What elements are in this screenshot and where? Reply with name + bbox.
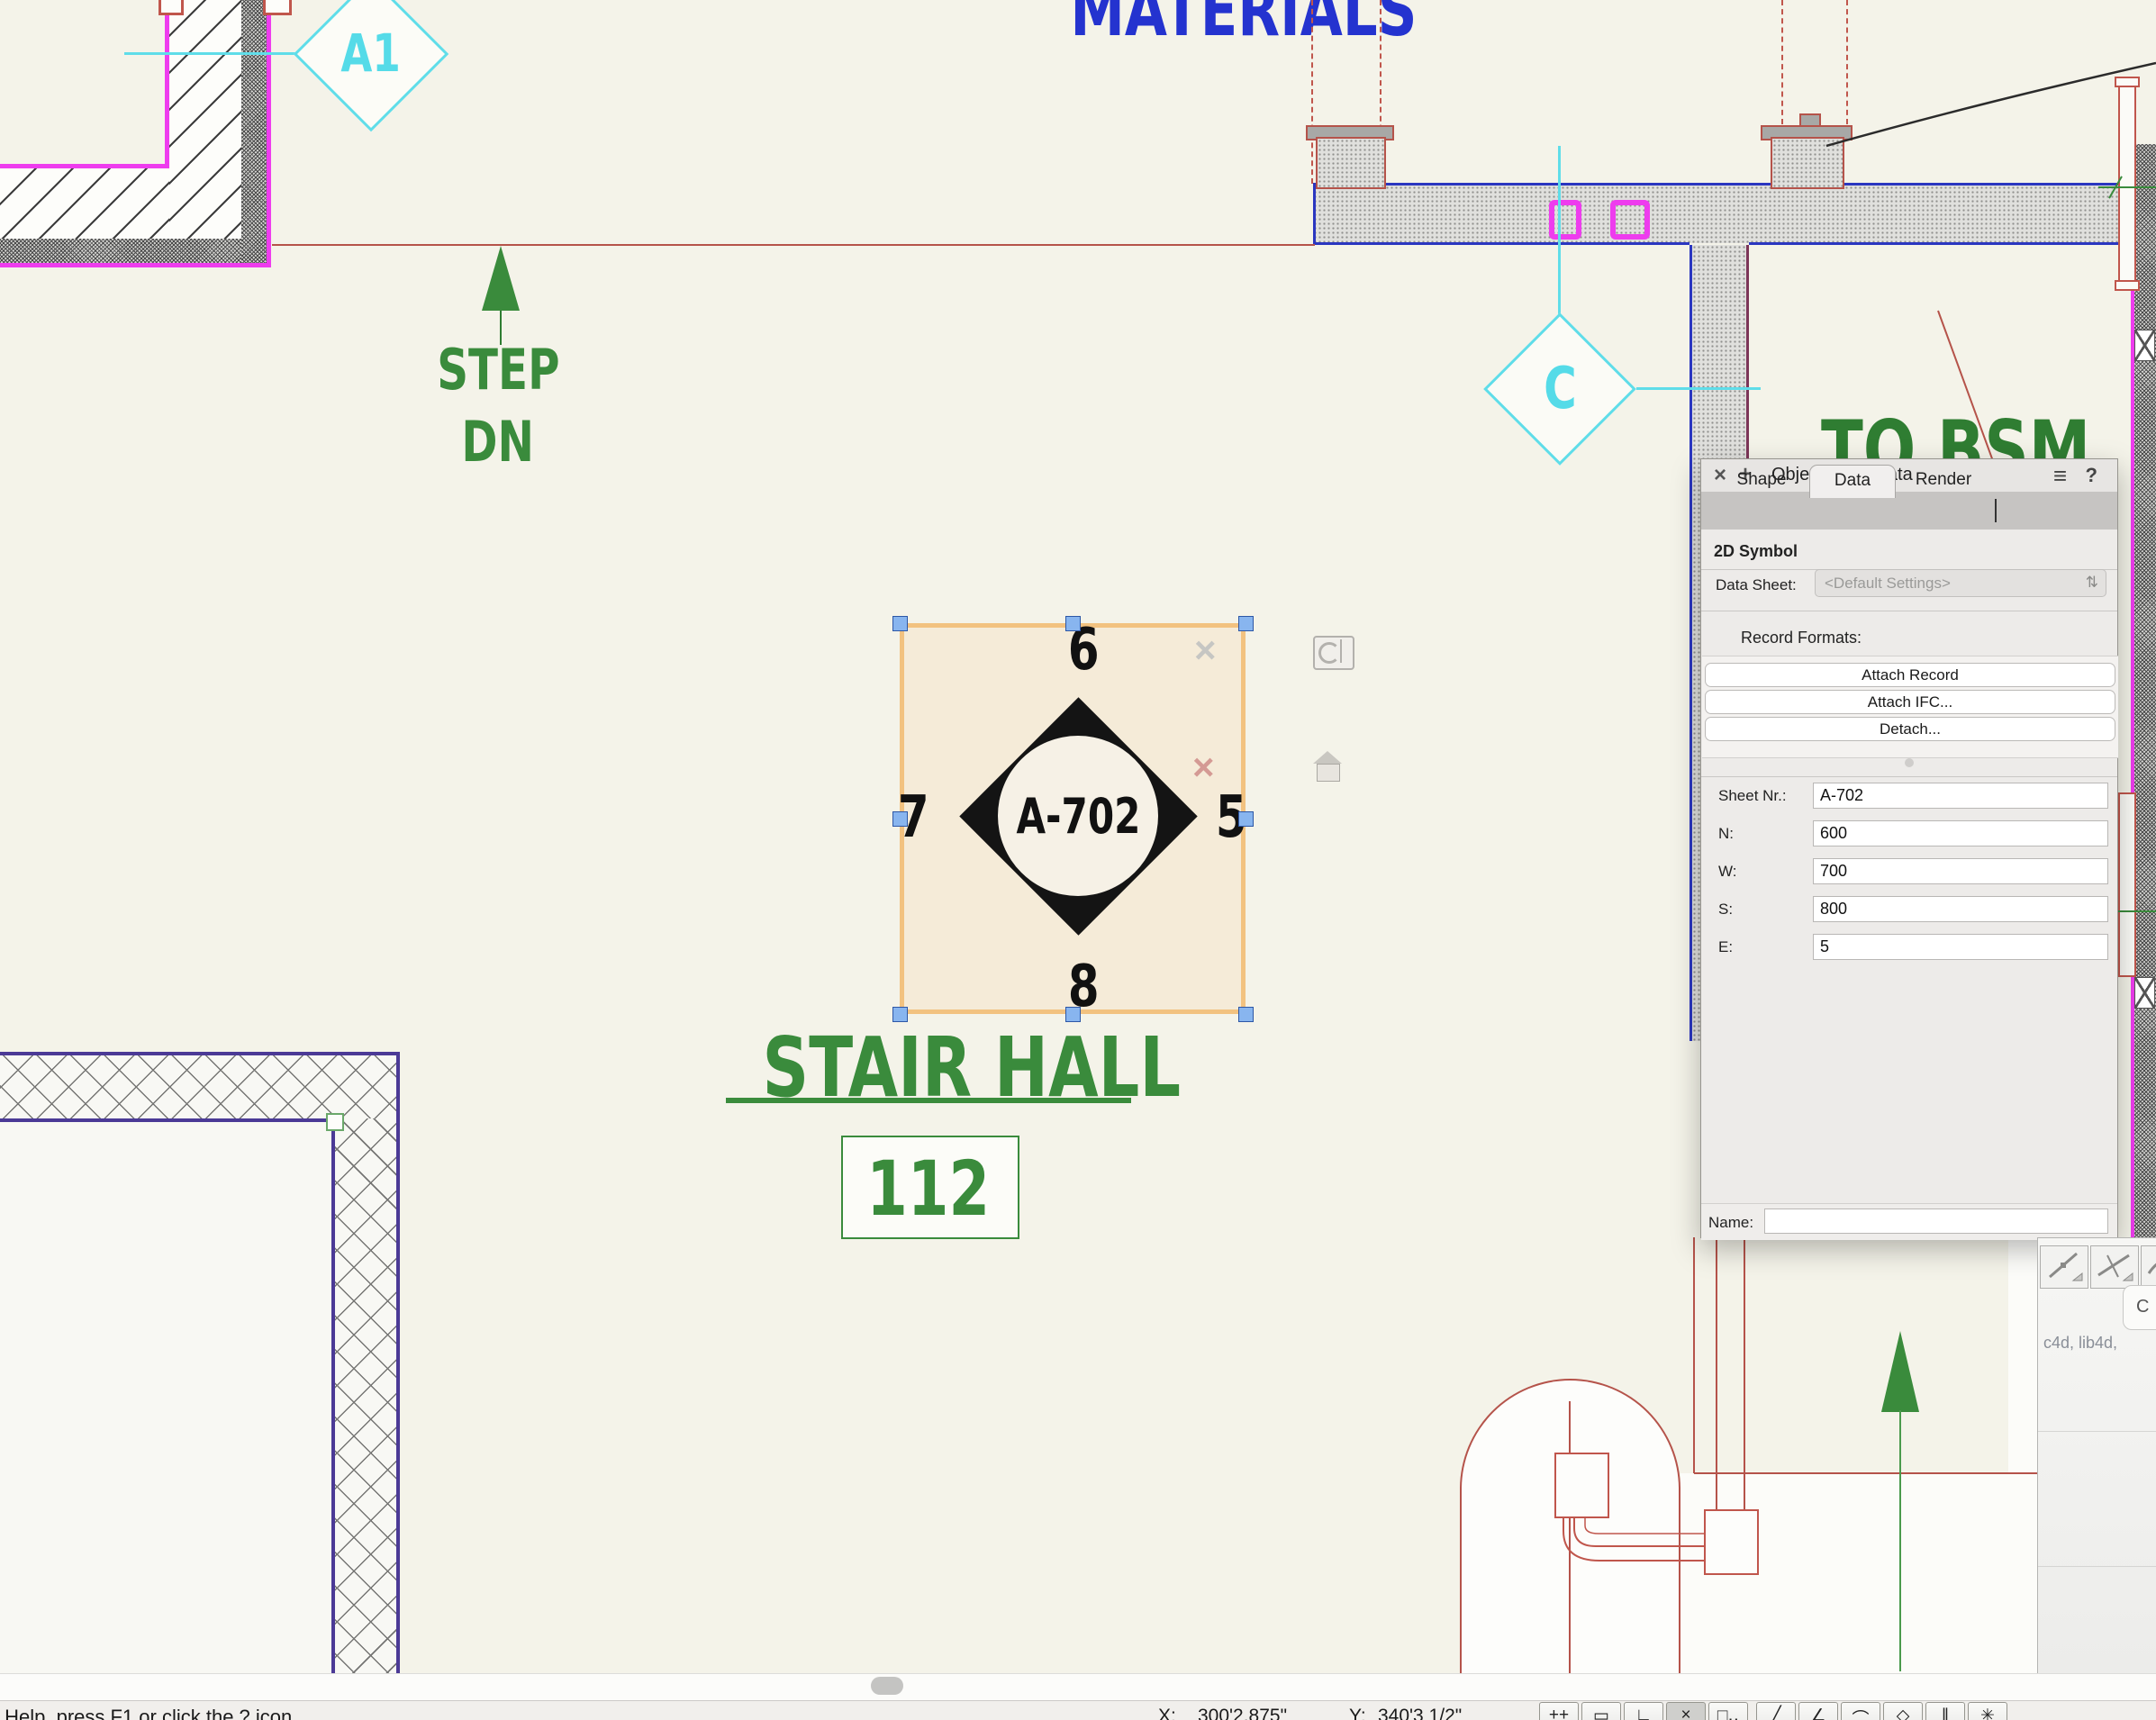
- wall-crosshatch: [0, 1055, 396, 1118]
- wall-edge: [165, 0, 169, 166]
- door-frame: [2118, 77, 2136, 291]
- marker-c-label: C: [1515, 360, 1605, 418]
- tab-render[interactable]: Render: [1898, 465, 1989, 497]
- snap-tool-button[interactable]: ∥: [1925, 1702, 1965, 1720]
- selection-handle[interactable]: [1238, 811, 1254, 827]
- column-body: [1316, 137, 1386, 189]
- tab-data[interactable]: Data: [1809, 465, 1896, 498]
- wall-edge-purple: [396, 1052, 400, 1720]
- field-label-s: S:: [1718, 901, 1733, 919]
- snap-tool-button[interactable]: ×: [1666, 1702, 1706, 1720]
- green-ref-line: [2098, 186, 2156, 188]
- junction-box: [1554, 1453, 1609, 1518]
- detail-number-top: 6: [1038, 621, 1128, 679]
- window-symbol: [2134, 330, 2156, 362]
- selection-handle[interactable]: [1238, 1007, 1254, 1022]
- pipe-line: [1569, 1401, 1571, 1453]
- dimension-tool-button[interactable]: [2090, 1245, 2139, 1289]
- attach-ifc-button[interactable]: Attach IFC...: [1705, 690, 2115, 714]
- selection-handle[interactable]: [1065, 616, 1081, 631]
- step-dn-label: STEP: [408, 342, 588, 398]
- snap-tool-button[interactable]: ++: [1539, 1702, 1579, 1720]
- tab-caret: [1995, 499, 1997, 522]
- pipe-line: [1716, 1237, 1717, 1509]
- page-edge-line: [1693, 1237, 1695, 1473]
- field-label-n: N:: [1718, 825, 1734, 843]
- marker-a1-label: A1: [326, 27, 416, 79]
- dimension-arc-icon: [2142, 1246, 2156, 1286]
- detail-number-bottom: 8: [1038, 958, 1128, 1016]
- step-arrow-icon: [482, 246, 520, 311]
- attach-record-button[interactable]: Attach Record: [1705, 663, 2115, 687]
- wall-edge: [267, 0, 271, 267]
- wall-crosshatch: [335, 1118, 396, 1720]
- w-input[interactable]: [1813, 858, 2108, 884]
- detail-number-right: 5: [1186, 789, 1276, 846]
- stepper-icon[interactable]: ⇅: [2086, 574, 2098, 592]
- leader-line: [124, 52, 295, 55]
- snap-tool-button[interactable]: ▭: [1581, 1702, 1621, 1720]
- delete-x-icon[interactable]: ×: [1192, 746, 1215, 789]
- wall-opening-marker: [1549, 200, 1581, 240]
- help-icon[interactable]: ?: [2086, 464, 2097, 487]
- materials-label: MATERIALS: [1021, 0, 1381, 47]
- horizontal-scrollbar[interactable]: [0, 1673, 2156, 1701]
- dimension-tool-button[interactable]: [2141, 1245, 2156, 1289]
- wall-edge-blue: [1313, 183, 2156, 186]
- green-ref-line: [2118, 910, 2156, 912]
- wrench-glyph: [1318, 642, 1340, 664]
- sheet-number-label: A-702: [988, 792, 1168, 841]
- house-body: [1317, 764, 1340, 782]
- window-x: [2134, 330, 2155, 361]
- green-arrow-stem: [1899, 1410, 1901, 1671]
- n-input[interactable]: [1813, 820, 2108, 846]
- resize-dot[interactable]: [1905, 758, 1914, 767]
- door-frame: [2118, 792, 2136, 977]
- detach-button[interactable]: Detach...: [1705, 717, 2115, 741]
- dashed-line: [1846, 0, 1848, 124]
- resource-tab[interactable]: C: [2123, 1285, 2156, 1330]
- window-symbol: [2134, 977, 2156, 1009]
- wall-line: [272, 244, 1315, 246]
- leader-line: [1636, 387, 1761, 390]
- dimension-angle-icon: [2091, 1246, 2136, 1286]
- selection-handle[interactable]: [892, 811, 908, 827]
- name-input[interactable]: [1764, 1209, 2108, 1234]
- wall-fill: [1313, 186, 2156, 243]
- selection-handle[interactable]: [1065, 1007, 1081, 1022]
- file-types-text: c4d, lib4d,: [2043, 1334, 2117, 1353]
- resource-tab-label: C: [2136, 1297, 2149, 1317]
- wall-opening-marker: [1610, 200, 1650, 240]
- sheet-nr-input[interactable]: [1813, 783, 2108, 809]
- name-label: Name:: [1708, 1214, 1753, 1232]
- wall-edge-blue: [1313, 183, 1316, 245]
- house-icon[interactable]: [1311, 751, 1344, 783]
- cursor-y-value: 340'3 1/2": [1378, 1706, 1462, 1720]
- section-title: 2D Symbol: [1714, 542, 1798, 561]
- s-input[interactable]: [1813, 896, 2108, 922]
- snap-tool-button[interactable]: ∟: [1624, 1702, 1663, 1720]
- wall-core: [0, 239, 241, 263]
- room-number-label: 112: [841, 1151, 1016, 1227]
- dimension-tool-button[interactable]: [2040, 1245, 2088, 1289]
- wall-edge-purple: [0, 1052, 400, 1055]
- selection-handle[interactable]: [892, 616, 908, 631]
- wall-core: [241, 0, 267, 263]
- data-sheet-value: <Default Settings>: [1825, 575, 1951, 593]
- field-label-sheet-nr: Sheet Nr.:: [1718, 787, 1787, 805]
- wall-edge-blue: [1313, 242, 1689, 245]
- step-dn-label2: DN: [408, 414, 588, 470]
- snap-tool-button[interactable]: ✳: [1968, 1702, 2007, 1720]
- cursor-y-label: Y:: [1349, 1706, 1366, 1720]
- wall-core: [2134, 144, 2156, 1237]
- wall-edge-purple: [0, 1118, 335, 1122]
- window-x: [2134, 977, 2155, 1009]
- wall-edge: [0, 164, 169, 168]
- data-sheet-dropdown[interactable]: <Default Settings> ⇅: [1815, 569, 2106, 597]
- data-sheet-label: Data Sheet:: [1716, 576, 1797, 594]
- vectorworks-canvas: A1 MATERIALS C TO BSM STEP DN A-702 6: [0, 0, 2156, 1720]
- snap-tool-button[interactable]: □‥: [1708, 1702, 1748, 1720]
- leader-line: [1558, 146, 1561, 319]
- wall-hatch: [169, 0, 241, 239]
- white-region: [2008, 1237, 2037, 1720]
- deselect-x-icon[interactable]: ×: [1194, 629, 1217, 672]
- selection-handle[interactable]: [1238, 616, 1254, 631]
- dimension-tool-icon: [2041, 1246, 2086, 1286]
- dashed-line: [1781, 0, 1783, 124]
- white-region: [0, 1121, 333, 1720]
- cursor-x-label: X:: [1158, 1706, 1176, 1720]
- jamb-mark: [263, 0, 292, 15]
- scrollbar-thumb[interactable]: [871, 1677, 903, 1695]
- status-help-text: For Help, press F1 or click the ? icon: [0, 1706, 292, 1720]
- column-body: [1771, 137, 1844, 189]
- cursor-x-value: 300'2.875": [1198, 1706, 1287, 1720]
- snap-tool-button[interactable]: ∠: [1798, 1702, 1838, 1720]
- field-label-w: W:: [1718, 863, 1736, 881]
- tab-shape[interactable]: Shape: [1717, 465, 1806, 497]
- door-frame-nub: [2115, 280, 2140, 291]
- wall-edge-blue: [1749, 242, 2156, 245]
- menu-icon[interactable]: ≡: [2053, 462, 2067, 490]
- field-label-e: E:: [1718, 938, 1733, 956]
- wall-edge-purple: [331, 1122, 335, 1720]
- panel-divider: [1340, 639, 1342, 663]
- pipe-line: [1744, 1237, 1745, 1509]
- resource-panel: C c4d, lib4d,: [2037, 1237, 2156, 1720]
- pipe-line: [1569, 1518, 1571, 1673]
- record-formats-label: Record Formats:: [1741, 629, 1862, 647]
- e-input[interactable]: [1813, 934, 2108, 960]
- house-roof: [1313, 751, 1342, 764]
- wall-edge: [0, 263, 271, 267]
- dashed-line: [1311, 0, 1313, 184]
- room-name-underline: [726, 1098, 1131, 1103]
- detail-number-left: 7: [868, 789, 958, 846]
- green-arrow-icon: [1881, 1331, 1919, 1412]
- snap-tool-button[interactable]: ⌒: [1841, 1702, 1880, 1720]
- junction-box: [1704, 1509, 1759, 1575]
- snap-tool-button[interactable]: ╱: [1756, 1702, 1796, 1720]
- wrench-panel-icon[interactable]: [1313, 636, 1354, 670]
- object-info-palette: × + Object Info - Data ≡ ? Shape Data Re…: [1700, 458, 2118, 1238]
- selection-handle[interactable]: [892, 1007, 908, 1022]
- corner-marker: [326, 1113, 344, 1131]
- tab-strip: [1701, 492, 2117, 530]
- wall-hatch: [0, 168, 169, 239]
- door-frame-nub: [2115, 77, 2140, 87]
- jamb-mark: [159, 0, 184, 15]
- snap-tool-button[interactable]: ◇: [1883, 1702, 1923, 1720]
